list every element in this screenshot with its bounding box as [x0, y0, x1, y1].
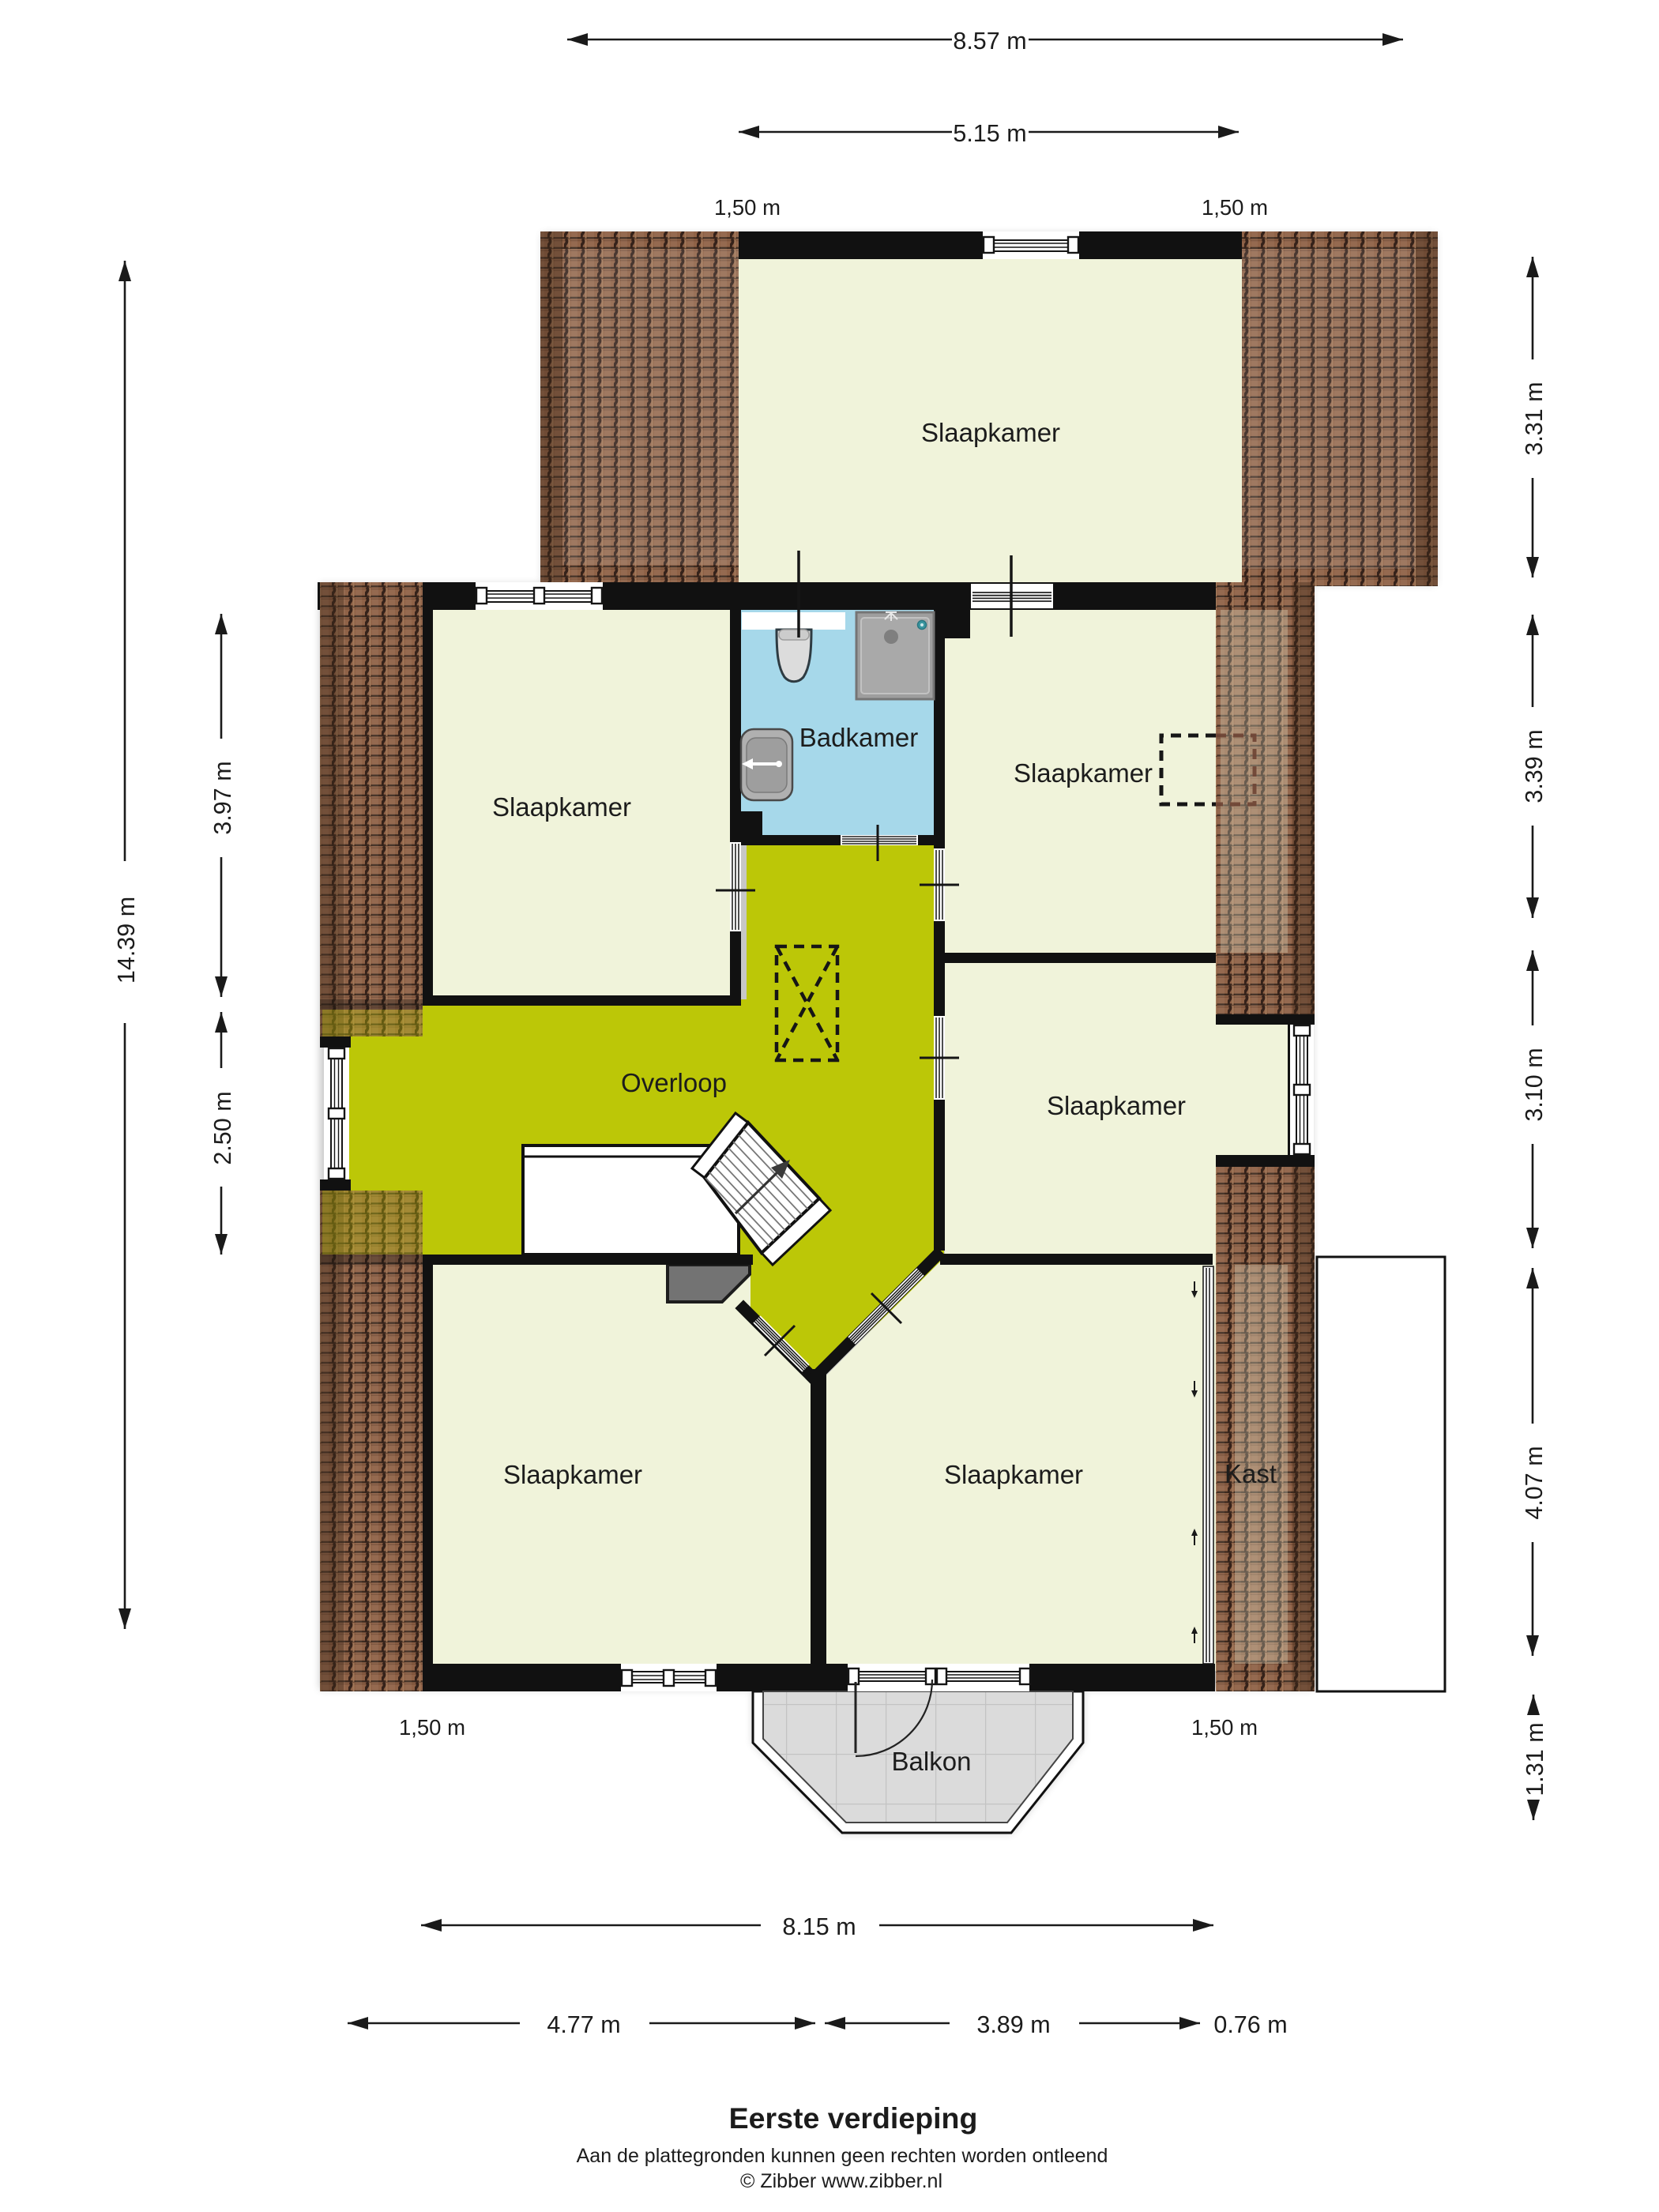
svg-text:3.31 m: 3.31 m — [1521, 382, 1548, 455]
svg-text:3.89 m: 3.89 m — [976, 2011, 1050, 2038]
svg-text:3.39 m: 3.39 m — [1521, 729, 1548, 803]
svg-text:© Zibber www.zibber.nl: © Zibber www.zibber.nl — [740, 2170, 942, 2192]
svg-text:14.39 m: 14.39 m — [113, 897, 140, 984]
svg-text:3.97 m: 3.97 m — [209, 761, 236, 834]
svg-text:Aan de plattegronden kunnen ge: Aan de plattegronden kunnen geen rechten… — [577, 2145, 1108, 2167]
svg-text:2.50 m: 2.50 m — [209, 1091, 236, 1164]
svg-text:Slaapkamer: Slaapkamer — [492, 792, 631, 822]
svg-text:1,50 m: 1,50 m — [1191, 1715, 1258, 1740]
svg-text:4.07 m: 4.07 m — [1521, 1446, 1548, 1519]
svg-text:1,50 m: 1,50 m — [1202, 195, 1268, 220]
svg-text:8.57 m: 8.57 m — [953, 28, 1026, 55]
svg-text:Slaapkamer: Slaapkamer — [1047, 1091, 1186, 1120]
svg-text:Slaapkamer: Slaapkamer — [1014, 758, 1153, 788]
svg-text:Balkon: Balkon — [892, 1747, 972, 1776]
svg-text:Badkamer: Badkamer — [799, 723, 918, 752]
svg-text:Slaapkamer: Slaapkamer — [503, 1460, 642, 1489]
svg-text:1,50 m: 1,50 m — [399, 1715, 465, 1740]
svg-text:Eerste verdieping: Eerste verdieping — [729, 2101, 978, 2135]
svg-text:Slaapkamer: Slaapkamer — [921, 418, 1060, 447]
svg-text:8.15 m: 8.15 m — [782, 1913, 856, 1940]
svg-text:3.10 m: 3.10 m — [1521, 1048, 1548, 1121]
svg-text:1,50 m: 1,50 m — [714, 195, 781, 220]
svg-text:5.15 m: 5.15 m — [953, 120, 1026, 147]
svg-text:Overloop: Overloop — [621, 1068, 727, 1097]
svg-text:4.77 m: 4.77 m — [547, 2011, 620, 2038]
svg-text:1.31 m: 1.31 m — [1522, 1722, 1548, 1796]
svg-text:Slaapkamer: Slaapkamer — [944, 1460, 1083, 1489]
svg-text:0.76 m: 0.76 m — [1213, 2011, 1287, 2038]
svg-text:Kast: Kast — [1224, 1459, 1277, 1488]
